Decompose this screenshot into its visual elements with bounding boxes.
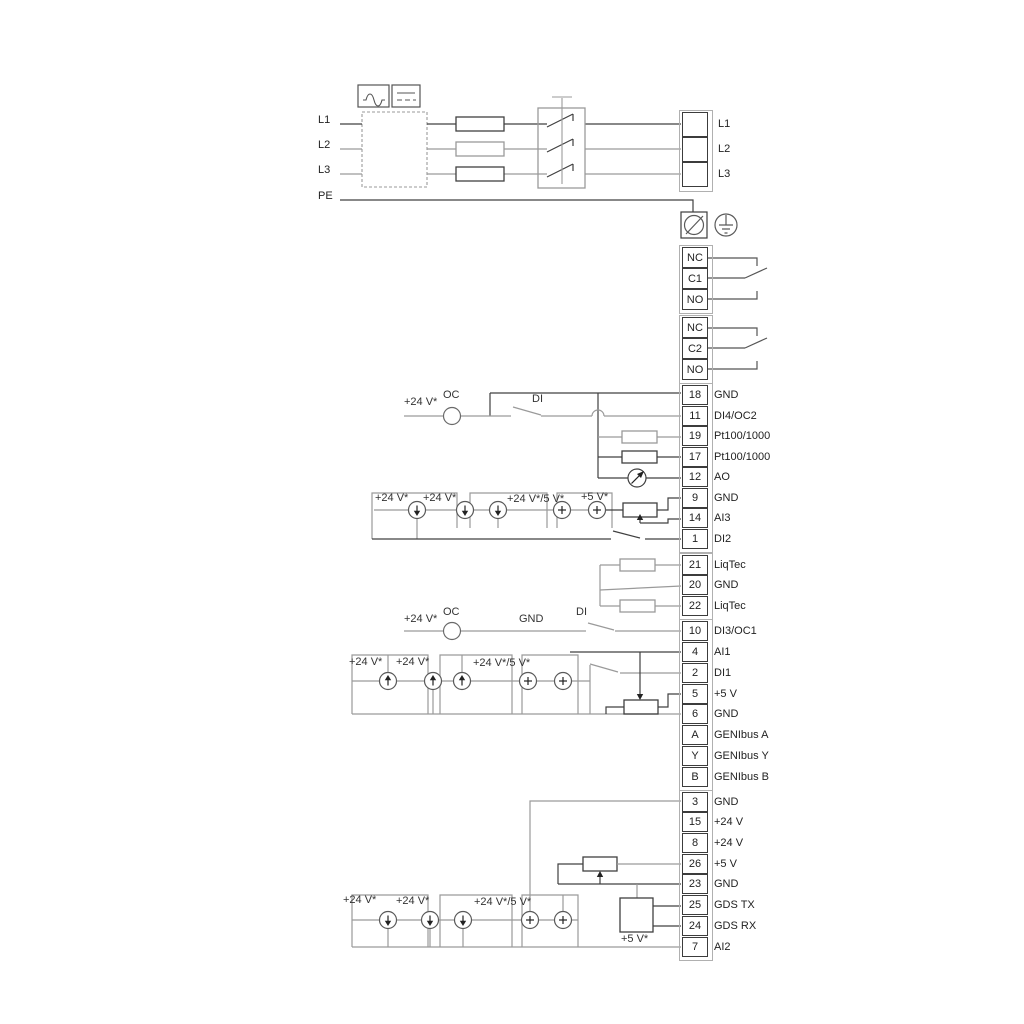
resistor-icon [622,451,657,463]
annotation-plus24v-5v: +24 V*/5 V* [507,493,564,505]
terminal-label-23: GND [714,878,738,890]
terminal-cell-3: 3 [682,792,708,812]
di1-switch-blade [590,664,618,672]
terminal-label-7: AI2 [714,941,731,953]
filter-box [362,112,427,187]
annotation-oc: OC [443,606,460,618]
terminal-cell-11: 11 [682,406,708,426]
plus-source-icon [522,912,539,929]
terminal-label-3: GND [714,796,738,808]
terminal-label-12: AO [714,471,730,483]
annotation-plus24v: +24 V* [404,613,437,625]
terminal-label-9: GND [714,492,738,504]
analog-output-meter-icon [628,469,646,487]
annotation-plus5v: +5 V* [621,933,648,945]
terminal-label-25: GDS TX [714,899,755,911]
potentiometer-icon [624,700,658,714]
pt100-ao-wiring [598,431,681,487]
annotation-plus24v-5v: +24 V*/5 V* [474,896,531,908]
terminal-cell-6: 6 [682,704,708,724]
current-source-down-arrow-icon [422,912,439,929]
terminal-cell-10: 10 [682,621,708,641]
terminal-label-18: GND [714,389,738,401]
terminal-cell-l2 [682,137,708,162]
terminal-cell-12: 12 [682,467,708,487]
terminal-cell-l1 [682,112,708,137]
liqtec-wiring [600,559,681,612]
terminal-label-22: LiqTec [714,600,746,612]
terminal-label-14: AI3 [714,512,731,524]
terminal-label-6: GND [714,708,738,720]
open-collector-icon [444,623,461,640]
terminal-label-21: LiqTec [714,559,746,571]
annotation-oc: OC [443,389,460,401]
current-source-down-arrow-icon [455,912,472,929]
plus-source-icon [520,673,537,690]
terminal-cell-b: B [682,767,708,787]
terminal-cell-18: 18 [682,385,708,405]
terminal-label-19: Pt100/1000 [714,430,770,442]
terminal-label-8: +24 V [714,837,743,849]
terminal-label-1: DI2 [714,533,731,545]
terminal-label-10: DI3/OC1 [714,625,757,637]
terminal-cell-21: 21 [682,555,708,575]
terminal-label-2: DI1 [714,667,731,679]
current-source-down-arrow-icon [457,502,474,519]
relay2-switch-blade [745,338,767,348]
fuse-l3 [456,167,504,181]
relay2-nc-cell: NC [682,317,708,338]
current-source-up-arrow-icon [454,673,471,690]
terminal-cell-14: 14 [682,508,708,528]
terminal-label-5: +5 V [714,688,737,700]
annotation-plus24v: +24 V* [349,656,382,668]
terminal-cell-4: 4 [682,642,708,662]
plus-source-icon [589,502,606,519]
di-switch-blade [513,407,541,415]
terminal-cell-a: A [682,725,708,745]
mains-label-l3: L3 [318,164,330,176]
terminal-cell-y: Y [682,746,708,766]
mains-label-pe: PE [318,190,333,202]
terminal-label-24: GDS RX [714,920,756,932]
terminal-label-11: DI4/OC2 [714,410,757,422]
terminal-label-l1: L1 [718,118,730,130]
resistor-icon [620,559,655,571]
annotation-plus24v: +24 V* [343,894,376,906]
terminal-label-l3: L3 [718,168,730,180]
relay2-no-cell: NO [682,359,708,380]
terminal-cell-l3 [682,162,708,187]
terminal-cell-20: 20 [682,575,708,595]
terminal-cell-1: 1 [682,529,708,549]
plus-source-icon [555,673,572,690]
fuse-l1 [456,117,504,131]
terminal-cell-9: 9 [682,488,708,508]
terminal-cell-2: 2 [682,663,708,683]
relay1-contact-wiring [708,258,767,299]
bottom-section-wiring [352,801,681,947]
relay1-switch-blade [745,268,767,278]
terminal-label-20: GND [714,579,738,591]
current-source-up-arrow-icon [380,673,397,690]
terminal-cell-22: 22 [682,596,708,616]
current-source-down-arrow-icon [409,502,426,519]
current-source-up-arrow-icon [425,673,442,690]
fuse-l2 [456,142,504,156]
gds-sensor-box [620,898,653,932]
relay2-contact-wiring [708,328,767,369]
annotation-di: DI [576,606,587,618]
power-mains-wiring [340,85,693,212]
relay2-c2-cell: C2 [682,338,708,359]
plus-source-icon [555,912,572,929]
terminal-cell-23: 23 [682,874,708,894]
annotation-plus24v-5v: +24 V*/5 V* [473,657,530,669]
terminal-label-genibus-b: GENIbus B [714,771,769,783]
relay1-no-cell: NO [682,289,708,310]
annotation-plus5v: +5 V* [581,491,608,503]
di3-oc1-wiring [404,623,681,640]
relay1-nc-cell: NC [682,247,708,268]
relay1-c1-cell: C1 [682,268,708,289]
terminal-cell-25: 25 [682,895,708,915]
potentiometer-icon [583,857,617,871]
wiring-diagram-graphics [0,0,1024,1024]
resistor-icon [620,600,655,612]
open-collector-icon [444,408,461,425]
terminal-cell-26: 26 [682,854,708,874]
terminal-label-genibus-y: GENIbus Y [714,750,769,762]
earth-symbols [681,212,737,238]
terminal-label-15: +24 V [714,816,743,828]
terminal-cell-8: 8 [682,833,708,853]
current-source-down-arrow-icon [490,502,507,519]
annotation-gnd: GND [519,613,543,625]
terminal-label-l2: L2 [718,143,730,155]
terminal-label-4: AI1 [714,646,731,658]
terminal-cell-17: 17 [682,447,708,467]
current-source-down-arrow-icon [380,912,397,929]
mains-label-l1: L1 [318,114,330,126]
di4-oc2-wiring [404,393,681,478]
annotation-plus24v: +24 V* [375,492,408,504]
protective-earth-icon [715,214,737,236]
resistor-icon [622,431,657,443]
terminal-cell-19: 19 [682,426,708,446]
terminal-label-genibus-a: GENIbus A [714,729,768,741]
annotation-plus24v: +24 V* [396,656,429,668]
dc-line-icon [392,85,420,107]
terminal-label-17: Pt100/1000 [714,451,770,463]
annotation-plus24v: +24 V* [396,895,429,907]
terminal-cell-24: 24 [682,916,708,936]
pe-wire [340,200,693,212]
annotation-plus24v: +24 V* [404,396,437,408]
terminal-label-26: +5 V [714,858,737,870]
annotation-plus24v: +24 V* [423,492,456,504]
mains-label-l2: L2 [318,139,330,151]
terminal-cell-15: 15 [682,812,708,832]
wiring-diagram-page: L1 L2 L3 L1 L2 L3 PE NC C1 NO NC C2 NO 1… [0,0,1024,1024]
di-switch-blade [588,623,614,630]
annotation-di: DI [532,393,543,405]
terminal-cell-5: 5 [682,684,708,704]
di2-switch-blade [613,531,640,538]
ac-wave-icon [358,85,389,107]
terminal-cell-7: 7 [682,937,708,957]
